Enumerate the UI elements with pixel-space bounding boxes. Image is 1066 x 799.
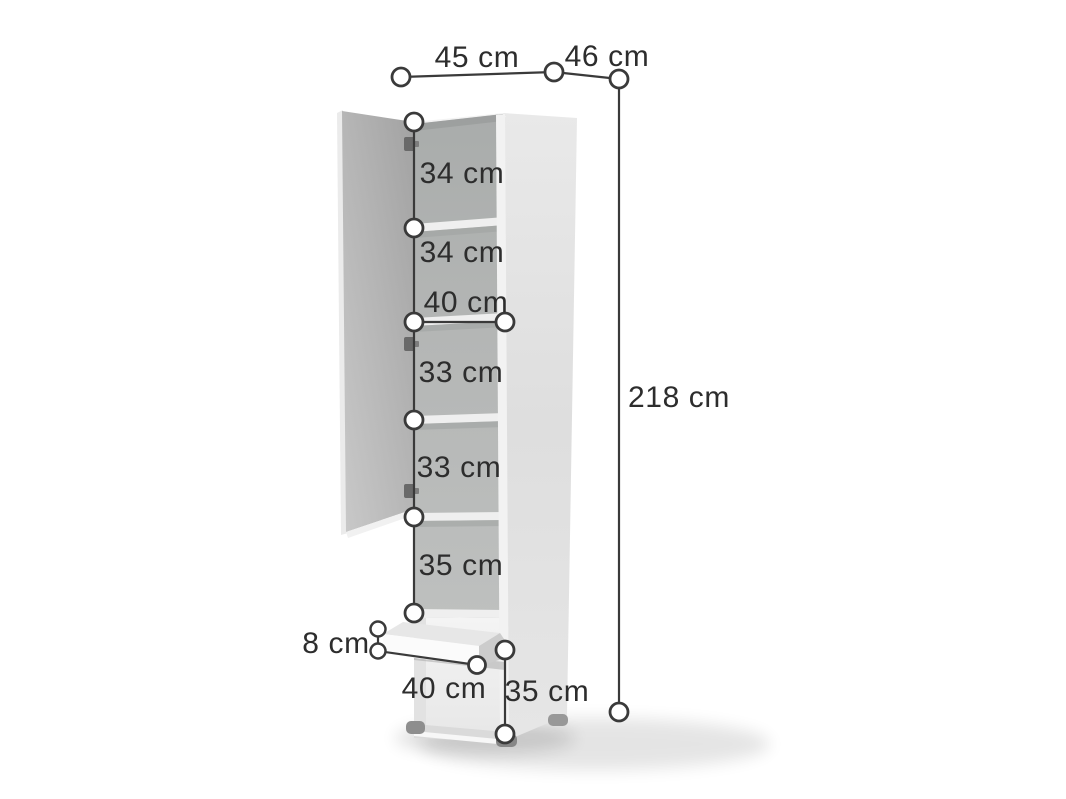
label-interior-width: 40 cm (424, 286, 509, 319)
point-shelf-3 (405, 411, 423, 429)
label-shelf-4: 33 cm (417, 451, 502, 484)
cabinet-dimension-drawing: 45 cm 46 cm 218 cm 34 cm 34 cm 40 cm 33 … (0, 0, 1066, 799)
label-bottom-height: 35 cm (505, 675, 590, 708)
point-shelf-0 (405, 113, 423, 131)
point-top-left (392, 68, 410, 86)
foot-left (406, 721, 425, 734)
point-bottom-width-right (469, 657, 486, 674)
point-drawer-bottom (371, 644, 386, 659)
label-bottom-width: 40 cm (402, 672, 487, 705)
label-top-depth: 46 cm (565, 40, 650, 73)
label-shelf-5: 35 cm (419, 549, 504, 582)
point-drawer-top (371, 622, 386, 637)
label-top-width: 45 cm (435, 41, 520, 74)
point-shelf-2 (405, 313, 423, 331)
furniture-dimension-diagram: 45 cm 46 cm 218 cm 34 cm 34 cm 40 cm 33 … (0, 0, 1066, 799)
shelf-5 (414, 609, 505, 618)
point-bottom-right (610, 703, 628, 721)
label-drawer-height: 8 cm (302, 627, 369, 660)
label-shelf-2: 34 cm (420, 236, 505, 269)
foot-back-right (548, 714, 568, 726)
point-shelf-1 (405, 219, 423, 237)
label-shelf-3: 33 cm (419, 356, 504, 389)
cabinet-door-open (337, 110, 414, 538)
point-shelf-4 (405, 508, 423, 526)
point-bottom-height-top (496, 641, 514, 659)
shelf-4 (414, 512, 505, 527)
door-inner-face (342, 111, 414, 532)
label-shelf-1: 34 cm (420, 157, 505, 190)
point-shelf-5 (405, 604, 423, 622)
point-top-mid (545, 63, 563, 81)
label-total-height: 218 cm (628, 381, 730, 414)
point-bottom-height-bottom (496, 725, 514, 743)
